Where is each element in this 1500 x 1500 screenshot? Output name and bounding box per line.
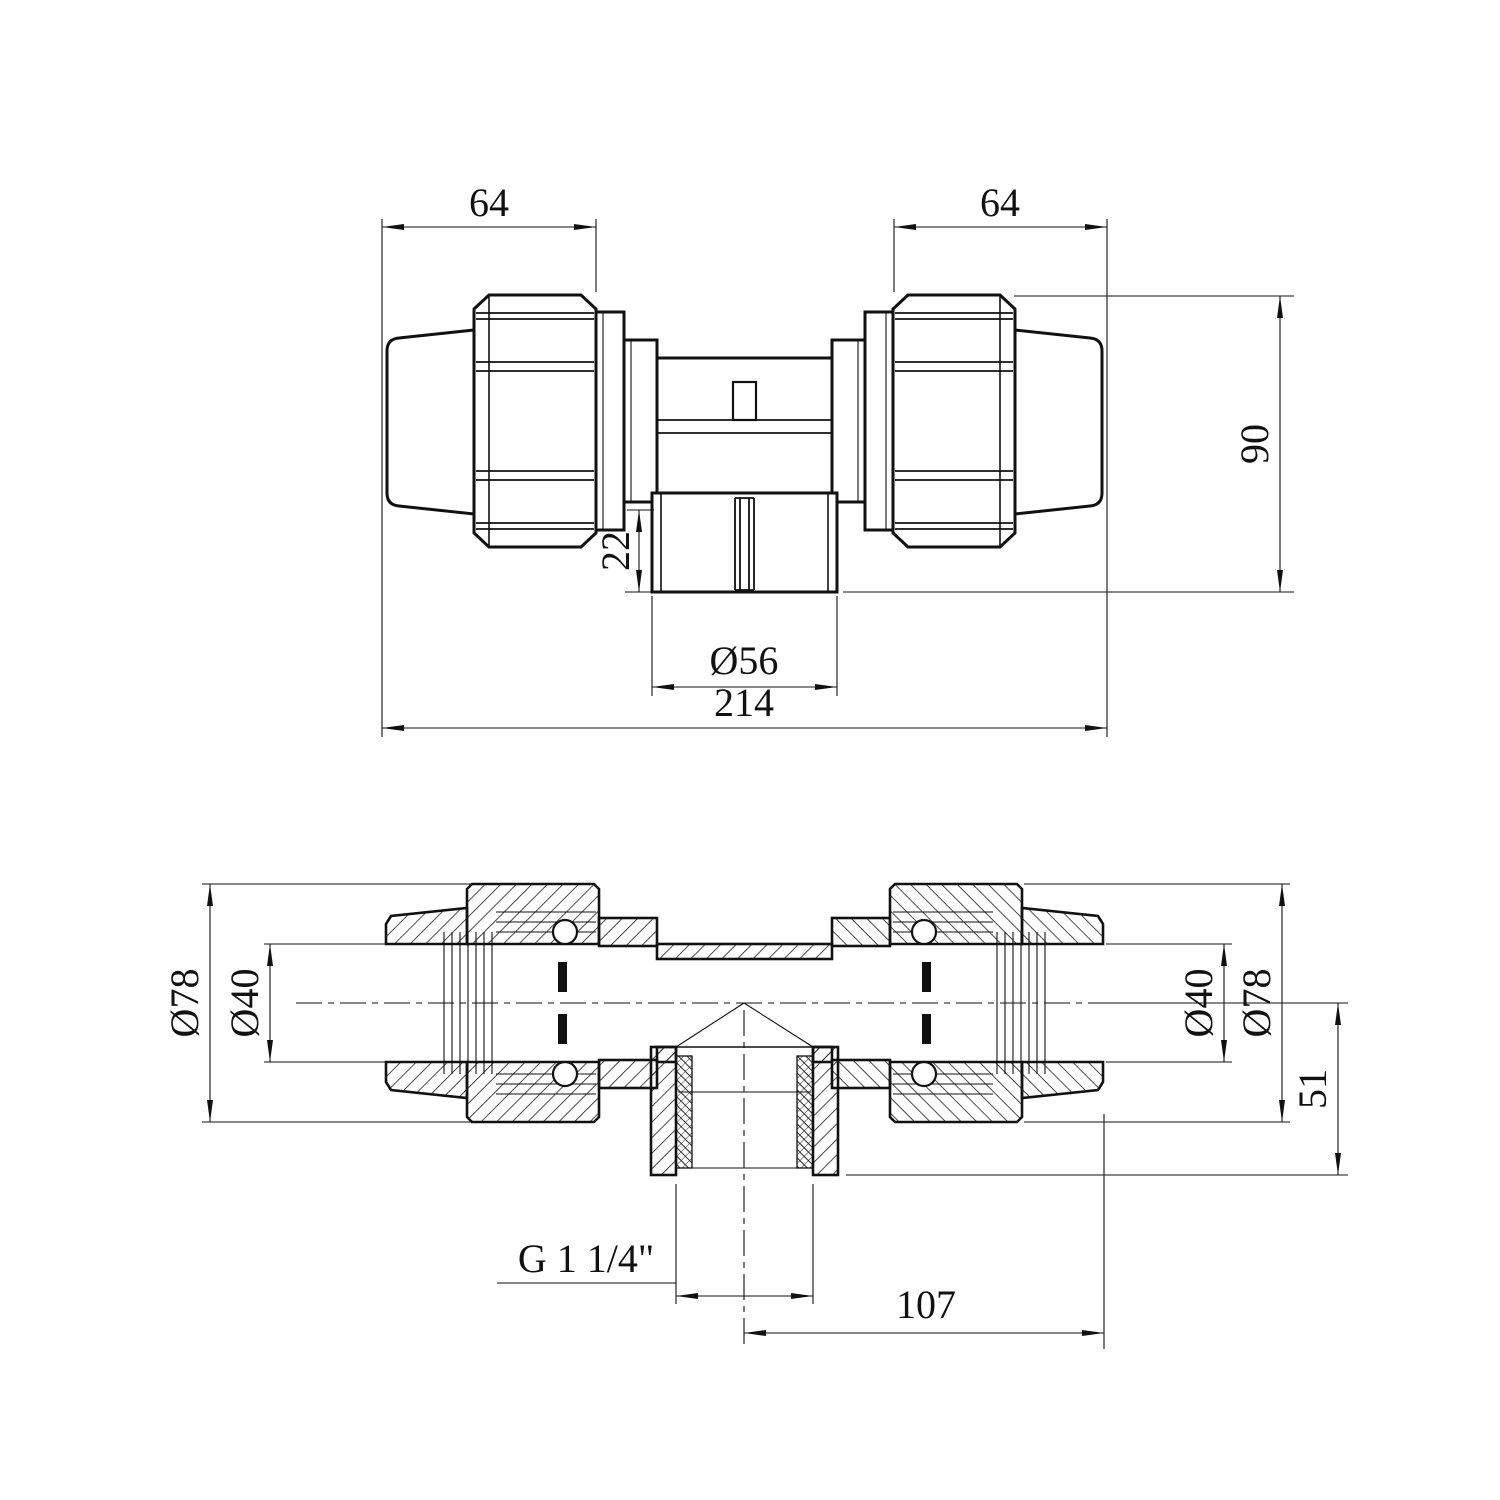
top-view <box>387 295 1102 592</box>
body-tube-top-wall <box>657 944 832 959</box>
dim-label-214: 214 <box>714 680 774 725</box>
dim-label-56: Ø56 <box>710 638 779 683</box>
dim-214: 214 <box>382 680 1107 728</box>
cone-line-left <box>676 1003 744 1047</box>
cone-line-right <box>744 1003 813 1047</box>
thread-zone-right <box>797 1056 813 1168</box>
body-center <box>657 358 832 493</box>
dim-label-64-left: 64 <box>469 180 509 225</box>
drawing-page: 64 64 90 22 Ø56 214 <box>0 0 1500 1500</box>
dim-thread: G 1 1/4" <box>497 1184 813 1304</box>
branch-stub <box>652 493 837 592</box>
technical-drawing-canvas: 64 64 90 22 Ø56 214 <box>0 0 1500 1500</box>
dim-label-78-left: Ø78 <box>162 969 207 1038</box>
section-view <box>296 884 1194 1349</box>
body-tab <box>733 382 756 420</box>
thread-size-label: G 1 1/4" <box>518 1236 654 1281</box>
dim-label-40-left: Ø40 <box>222 969 267 1038</box>
dim-64-right: 64 <box>894 180 1107 227</box>
dim-label-90: 90 <box>1232 424 1277 464</box>
dim-label-64-right: 64 <box>980 180 1020 225</box>
dim-label-51: 51 <box>1290 1069 1335 1109</box>
thread-zone-left <box>676 1056 692 1168</box>
branch-wall-left <box>651 1047 676 1175</box>
dim-label-22: 22 <box>593 531 638 571</box>
branch-wall-right <box>813 1047 838 1175</box>
dim-64-left: 64 <box>382 180 596 227</box>
dim-label-107: 107 <box>896 1282 956 1327</box>
